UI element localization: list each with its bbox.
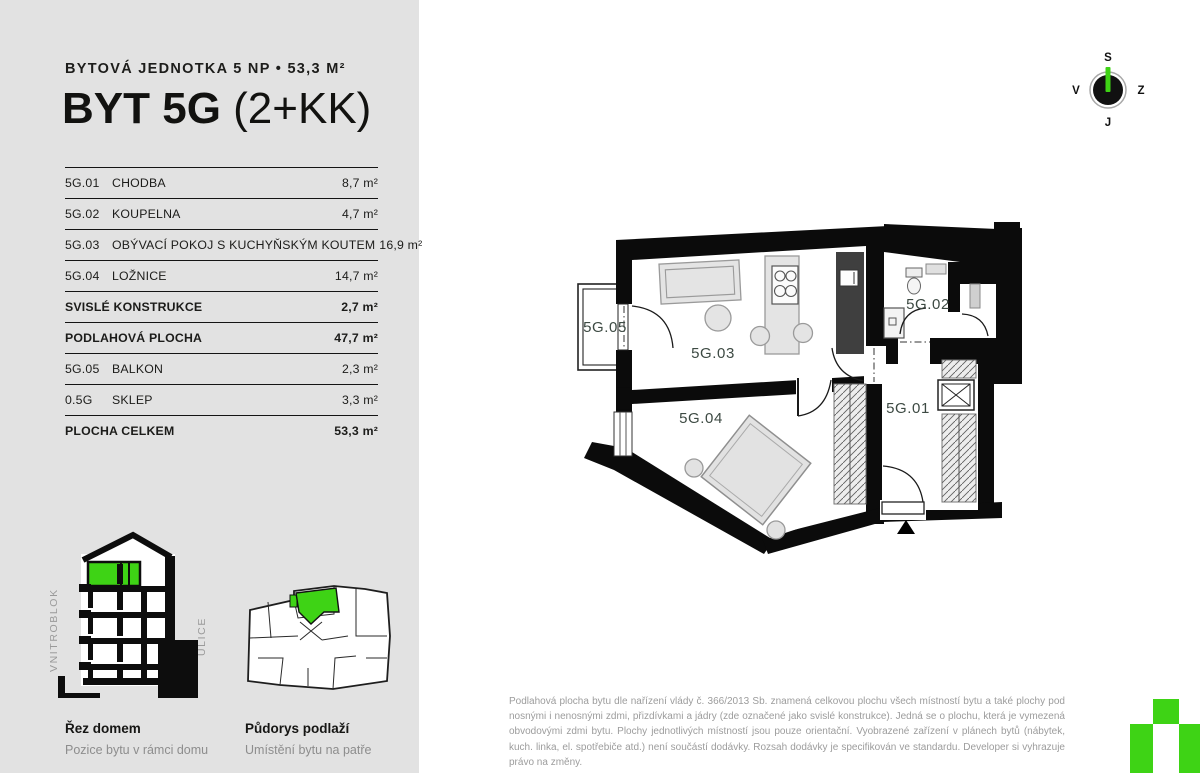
room-area: 3,3 m²	[342, 393, 378, 407]
room-area: 47,7 m²	[334, 331, 378, 345]
entrance-arrow-icon	[897, 520, 915, 534]
room-label-5g04: 5G.04	[679, 410, 723, 427]
room-label-5g02: 5G.02	[906, 296, 950, 313]
compass-south-label: J	[1105, 117, 1111, 129]
shower	[884, 308, 904, 338]
room-label-5g05: 5G.05	[583, 319, 627, 336]
section-caption-title: Řez domem	[65, 719, 208, 739]
room-area: 16,9 m²	[379, 238, 422, 252]
floorplan-page: BYTOVÁ JEDNOTKA 5 NP • 53,3 M² BYT 5G (2…	[0, 0, 1200, 773]
table-row: 5G.03 OBÝVACÍ POKOJ S KUCHYŇSKÝM KOUTEM …	[65, 229, 378, 260]
area-table: 5G.01 CHODBA 8,7 m² 5G.02 KOUPELNA 4,7 m…	[65, 167, 378, 446]
floor-caption-title: Půdorys podlaží	[245, 719, 371, 739]
section-caption-sub: Pozice bytu v rámci domu	[65, 741, 208, 759]
kitchen-cabinet	[836, 252, 864, 354]
room-code: 5G.01	[65, 176, 112, 190]
room-name: PODLAHOVÁ PLOCHA	[65, 331, 334, 345]
washing-machine	[938, 380, 974, 410]
chair	[751, 327, 770, 346]
room-label-5g03: 5G.03	[691, 345, 735, 362]
room-name: CHODBA	[112, 176, 342, 190]
room-name: PLOCHA CELKEM	[65, 424, 334, 438]
toilet	[906, 268, 922, 294]
compass-west-label: V	[1072, 85, 1080, 97]
table-row-total: PLOCHA CELKEM 53,3 m²	[65, 415, 378, 446]
table-row: 5G.01 CHODBA 8,7 m²	[65, 167, 378, 198]
table-row: PODLAHOVÁ PLOCHA 47,7 m²	[65, 322, 378, 353]
section-left-label: VNITROBLOK	[48, 588, 60, 672]
niche-fixture	[970, 284, 980, 308]
room-code: 5G.02	[65, 207, 112, 221]
bath-counter	[926, 264, 946, 274]
room-code: 5G.05	[65, 362, 112, 376]
floor-position-diagram	[238, 578, 398, 706]
table-row: SVISLÉ KONSTRUKCE 2,7 m²	[65, 291, 378, 322]
floor-caption-sub: Umístění bytu na patře	[245, 741, 371, 759]
room-label-5g01: 5G.01	[886, 400, 930, 417]
table-row: 5G.02 KOUPELNA 4,7 m²	[65, 198, 378, 229]
room-area: 8,7 m²	[342, 176, 378, 190]
unit-title-suffix: (2+KK)	[233, 84, 371, 133]
room-name: SKLEP	[112, 393, 342, 407]
room-area: 14,7 m²	[335, 269, 378, 283]
compass-icon: S V Z J	[1066, 46, 1152, 130]
unit-subtitle: BYTOVÁ JEDNOTKA 5 NP • 53,3 M²	[65, 61, 346, 77]
room-area: 2,3 m²	[342, 362, 378, 376]
room-name: LOŽNICE	[112, 269, 335, 283]
unit-title: BYT 5G (2+KK)	[62, 84, 371, 134]
floor-plan: 5G.05 5G.03 5G.02 5G.04 5G.01	[570, 218, 1040, 563]
compass-east-label: Z	[1137, 85, 1144, 97]
table-row: 0.5G SKLEP 3,3 m²	[65, 384, 378, 415]
section-right-label: ULICE	[196, 617, 208, 656]
unit-title-main: BYT 5G	[62, 84, 221, 133]
section-caption: Řez domem Pozice bytu v rámci domu	[65, 719, 208, 759]
sofa	[659, 260, 741, 304]
building-section-diagram	[55, 528, 205, 708]
nightstand	[767, 521, 785, 539]
highlighted-unit-section	[88, 562, 140, 586]
room-code: 0.5G	[65, 393, 112, 407]
room-name: KOUPELNA	[112, 207, 342, 221]
legal-note: Podlahová plocha bytu dle nařízení vlády…	[509, 694, 1065, 770]
room-code: 5G.03	[65, 238, 112, 252]
room-name: OBÝVACÍ POKOJ S KUCHYŇSKÝM KOUTEM	[112, 238, 379, 252]
room-area: 53,3 m²	[334, 424, 378, 438]
room-code: 5G.04	[65, 269, 112, 283]
compass-north-label: S	[1104, 52, 1112, 64]
brand-logo	[1130, 699, 1200, 773]
table-row: 5G.05 BALKON 2,3 m²	[65, 353, 378, 384]
room-area: 2,7 m²	[341, 300, 378, 314]
nightstand	[685, 459, 703, 477]
room-name: SVISLÉ KONSTRUKCE	[65, 300, 341, 314]
table-row: 5G.04 LOŽNICE 14,7 m²	[65, 260, 378, 291]
round-table	[705, 305, 731, 331]
bedroom-window	[614, 412, 632, 456]
room-name: BALKON	[112, 362, 342, 376]
entrance-door	[882, 502, 924, 514]
floor-caption: Půdorys podlaží Umístění bytu na patře	[245, 719, 371, 759]
chair	[794, 324, 813, 343]
room-area: 4,7 m²	[342, 207, 378, 221]
